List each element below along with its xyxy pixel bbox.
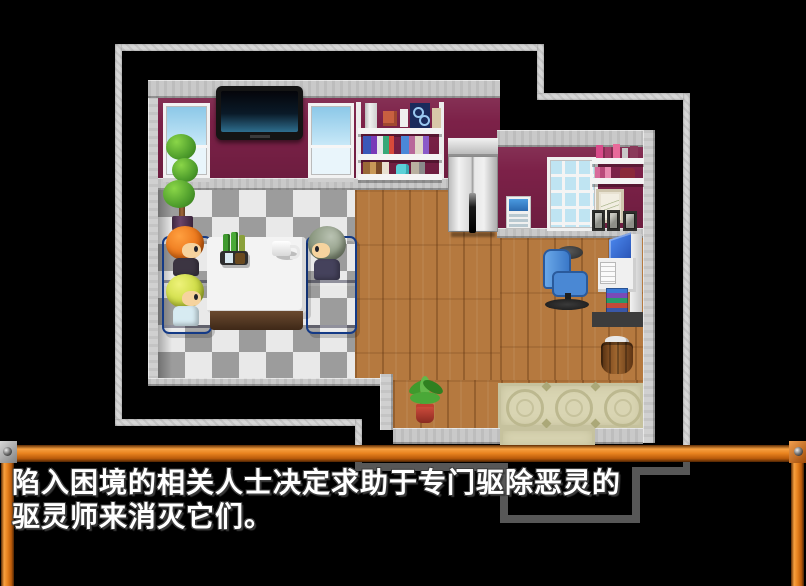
mat-diamond — [542, 419, 552, 429]
bottle — [622, 148, 628, 158]
topiary-bush — [166, 134, 196, 160]
frame-corner-plate — [0, 441, 17, 463]
shelf-item-box — [383, 111, 397, 126]
window-right — [547, 157, 598, 231]
barrel-body — [601, 342, 633, 374]
photo — [610, 213, 617, 228]
flat-screen-tv — [216, 86, 303, 140]
game-screen[interactable]: 陷入困境的相关人士决定求助于专门驱除恶灵的 驱灵师来消灭它们。 — [0, 0, 806, 586]
shelf-board — [358, 128, 442, 134]
char-face — [182, 291, 201, 306]
top-wall-cap-left — [148, 80, 500, 98]
plant-pot — [416, 404, 434, 423]
photo — [626, 214, 634, 228]
char-body — [314, 259, 340, 280]
book-stack — [606, 288, 628, 313]
topiary-bush — [163, 180, 195, 208]
shelf-books-row — [363, 136, 439, 154]
entrance-mat — [498, 383, 643, 428]
bottle — [605, 147, 611, 158]
glass — [225, 253, 233, 263]
window-lower-pane — [312, 148, 350, 174]
map-outline-left — [115, 44, 122, 426]
mat-circle — [604, 389, 642, 427]
shelf-board — [592, 178, 644, 184]
bottle — [595, 167, 611, 178]
bottle — [596, 145, 603, 158]
window-sky — [312, 107, 350, 146]
photo-frame — [607, 210, 620, 231]
bottle — [613, 144, 620, 158]
mat-diamond — [542, 382, 552, 392]
computer-desk — [596, 234, 642, 316]
corner-screw — [3, 447, 12, 456]
coffee-mug — [272, 241, 298, 261]
char-eye — [194, 246, 198, 252]
shelf-board — [358, 174, 442, 180]
trash-barrel — [601, 336, 633, 376]
extension-left-wall — [380, 374, 393, 430]
door-handle — [469, 193, 476, 233]
right-wall-edge — [643, 130, 655, 443]
mat-circle — [506, 389, 544, 427]
mug-handle — [290, 245, 300, 259]
desk-shadow-band — [592, 312, 643, 327]
photo-frame — [623, 211, 637, 231]
topiary-bush — [172, 158, 198, 182]
coffee-table-base — [210, 311, 303, 330]
dialogue-frame-right — [791, 447, 804, 586]
elevator-double-door — [448, 138, 498, 235]
cosmetics-shelves — [592, 144, 644, 186]
mat-diamond — [591, 419, 601, 429]
character-orange-hair[interactable] — [166, 226, 206, 278]
char-eye — [315, 246, 319, 252]
char-body — [173, 306, 199, 326]
shelf-board — [358, 154, 442, 160]
map-outline-step-v — [537, 44, 544, 100]
mat-circle — [555, 389, 593, 427]
bottle — [630, 146, 638, 158]
drink-tray — [220, 232, 250, 266]
wall-shelf-books — [356, 100, 444, 180]
photo-frame — [592, 210, 605, 231]
poster-line — [509, 214, 528, 217]
window-grid-pane — [551, 161, 594, 227]
shelf-board — [592, 158, 644, 164]
tv-screen — [221, 91, 298, 132]
door-lintel — [448, 138, 498, 156]
char-eye — [194, 294, 198, 300]
photo — [595, 213, 602, 228]
frame-corner-plate — [789, 441, 806, 463]
wall-poster — [506, 196, 531, 229]
poster-image — [509, 199, 528, 211]
dialogue-text-line2: 驱灵师来消灭它们。 — [12, 495, 273, 535]
dialogue-box[interactable]: 陷入困境的相关人士决定求助于专门驱除恶灵的 驱灵师来消灭它们。 — [0, 441, 806, 586]
character-blonde-hair[interactable] — [166, 274, 206, 328]
map-outline-right — [683, 93, 690, 448]
cd-rack — [600, 262, 616, 284]
corner-screw — [794, 447, 803, 456]
office-chair — [543, 243, 591, 311]
mat-diamond — [591, 382, 601, 392]
shelf-item-canister — [365, 103, 377, 128]
poster-line — [509, 224, 528, 227]
mug-body — [272, 241, 291, 256]
cup-dark — [235, 253, 245, 264]
chair-base — [545, 299, 589, 310]
character-gray-hair[interactable] — [306, 226, 346, 282]
bottom-wall-thin — [148, 378, 393, 386]
plant-leaf — [410, 392, 440, 404]
shelf-item-poster — [410, 103, 430, 128]
map-outline-step-h — [537, 93, 690, 100]
shelf-item-bottle — [400, 109, 408, 127]
map-outline-bottom — [115, 419, 362, 426]
door-shadow — [451, 232, 495, 237]
shelf-item-box — [432, 108, 441, 128]
potted-plant — [406, 374, 444, 424]
poster-line — [509, 219, 528, 222]
window-left-2 — [308, 103, 354, 178]
tv-stand — [250, 135, 270, 138]
poster-glyph — [419, 115, 430, 126]
topiary-plant — [160, 134, 200, 234]
map-outline-top — [115, 44, 544, 51]
shelf-side — [356, 102, 361, 178]
shoes — [620, 168, 635, 178]
char-face — [182, 243, 201, 258]
dialogue-frame-top — [0, 445, 806, 462]
